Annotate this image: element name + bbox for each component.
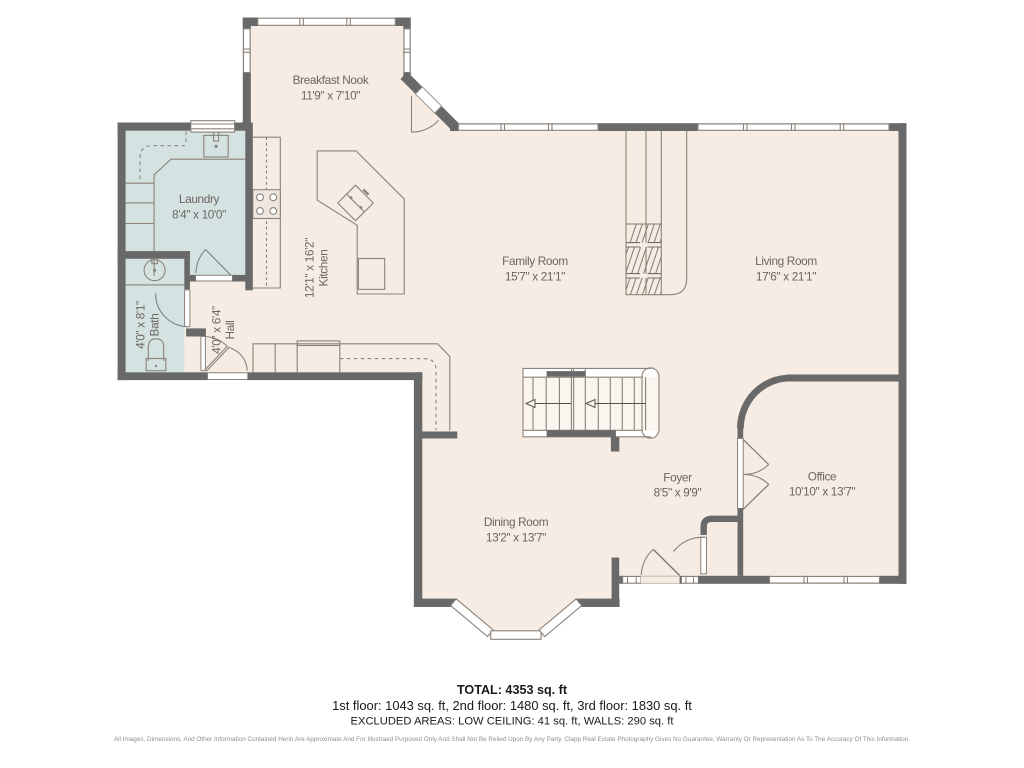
svg-text:10'10" x 13'7": 10'10" x 13'7": [789, 485, 856, 499]
svg-text:Hall: Hall: [223, 321, 237, 340]
svg-text:11'9" x 7'10": 11'9" x 7'10": [301, 89, 360, 103]
svg-text:TOTAL: 4353 sq. ft: TOTAL: 4353 sq. ft: [457, 683, 568, 697]
svg-text:15'7" x 21'1": 15'7" x 21'1": [505, 270, 565, 284]
svg-text:Kitchen: Kitchen: [317, 250, 331, 287]
svg-text:17'6" x 21'1": 17'6" x 21'1": [756, 270, 816, 284]
svg-text:8'5" x 9'9": 8'5" x 9'9": [654, 486, 702, 500]
svg-text:Bath: Bath: [148, 314, 162, 337]
svg-text:EXCLUDED AREAS: LOW CEILING: 4: EXCLUDED AREAS: LOW CEILING: 41 sq. ft, …: [351, 716, 675, 728]
svg-text:Living Room: Living Room: [755, 254, 817, 268]
svg-text:Family Room: Family Room: [502, 254, 568, 268]
svg-text:4'0" x 8'1": 4'0" x 8'1": [134, 301, 148, 349]
svg-text:Breakfast Nook: Breakfast Nook: [293, 73, 369, 87]
svg-text:All Images, Dimensions, And Ot: All Images, Dimensions, And Other Inform…: [114, 736, 910, 743]
svg-text:8'4" x 10'0": 8'4" x 10'0": [172, 208, 226, 222]
svg-text:Foyer: Foyer: [663, 471, 692, 485]
svg-text:Laundry: Laundry: [179, 192, 220, 206]
svg-text:13'2" x 13'7": 13'2" x 13'7": [486, 530, 546, 544]
svg-text:Dining Room: Dining Room: [484, 515, 549, 529]
svg-text:4'0" x 6'4": 4'0" x 6'4": [210, 306, 224, 354]
svg-text:12'1" x 16'2": 12'1" x 16'2": [303, 238, 317, 298]
svg-text:1st floor: 1043 sq. ft, 2nd fl: 1st floor: 1043 sq. ft, 2nd floor: 1480 …: [332, 698, 692, 713]
svg-text:Office: Office: [808, 470, 837, 484]
